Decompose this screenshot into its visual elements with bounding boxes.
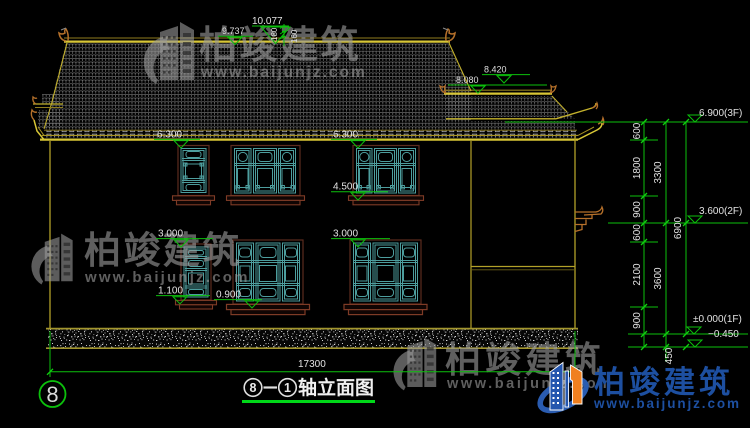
svg-text:1.100: 1.100 xyxy=(158,286,183,297)
svg-text:6.300: 6.300 xyxy=(333,129,358,140)
svg-text:600: 600 xyxy=(632,122,643,139)
svg-text:450: 450 xyxy=(664,347,675,364)
svg-text:3300: 3300 xyxy=(653,161,664,184)
svg-text:600: 600 xyxy=(632,224,643,241)
svg-text:3.000: 3.000 xyxy=(158,229,183,240)
svg-text:6.900(3F): 6.900(3F) xyxy=(699,108,742,119)
svg-text:17300: 17300 xyxy=(298,359,326,370)
svg-text:900: 900 xyxy=(632,312,643,329)
svg-text:0.900: 0.900 xyxy=(216,290,241,301)
svg-text:8.080: 8.080 xyxy=(456,75,479,85)
svg-text:9.737: 9.737 xyxy=(222,26,245,36)
svg-text:4.500: 4.500 xyxy=(333,182,358,193)
svg-text:3.600(2F): 3.600(2F) xyxy=(699,206,742,217)
svg-text:180: 180 xyxy=(270,27,279,41)
svg-text:1: 1 xyxy=(284,381,291,395)
svg-text:3600: 3600 xyxy=(653,267,664,290)
svg-text:900: 900 xyxy=(632,201,643,218)
svg-text:柏竣建筑: 柏竣建筑 xyxy=(594,365,734,400)
svg-text:8: 8 xyxy=(250,381,257,395)
svg-text:www.baijunjz.com: www.baijunjz.com xyxy=(200,64,367,81)
svg-text:3.000: 3.000 xyxy=(333,229,358,240)
svg-text:−0.450: −0.450 xyxy=(708,329,739,340)
svg-text:www.baijunjz.com: www.baijunjz.com xyxy=(593,396,741,411)
svg-text:6.300: 6.300 xyxy=(157,129,182,140)
svg-text:8: 8 xyxy=(46,382,58,407)
svg-text:±0.000(1F): ±0.000(1F) xyxy=(693,314,742,325)
svg-text:6900: 6900 xyxy=(673,216,684,239)
svg-text:8.420: 8.420 xyxy=(484,65,507,75)
svg-text:160: 160 xyxy=(290,29,299,43)
svg-text:轴立面图: 轴立面图 xyxy=(298,376,374,399)
svg-text:2100: 2100 xyxy=(632,263,643,286)
svg-text:www.baijunjz.com: www.baijunjz.com xyxy=(84,269,250,286)
svg-text:1800: 1800 xyxy=(632,156,643,179)
svg-text:10.077: 10.077 xyxy=(252,16,283,27)
